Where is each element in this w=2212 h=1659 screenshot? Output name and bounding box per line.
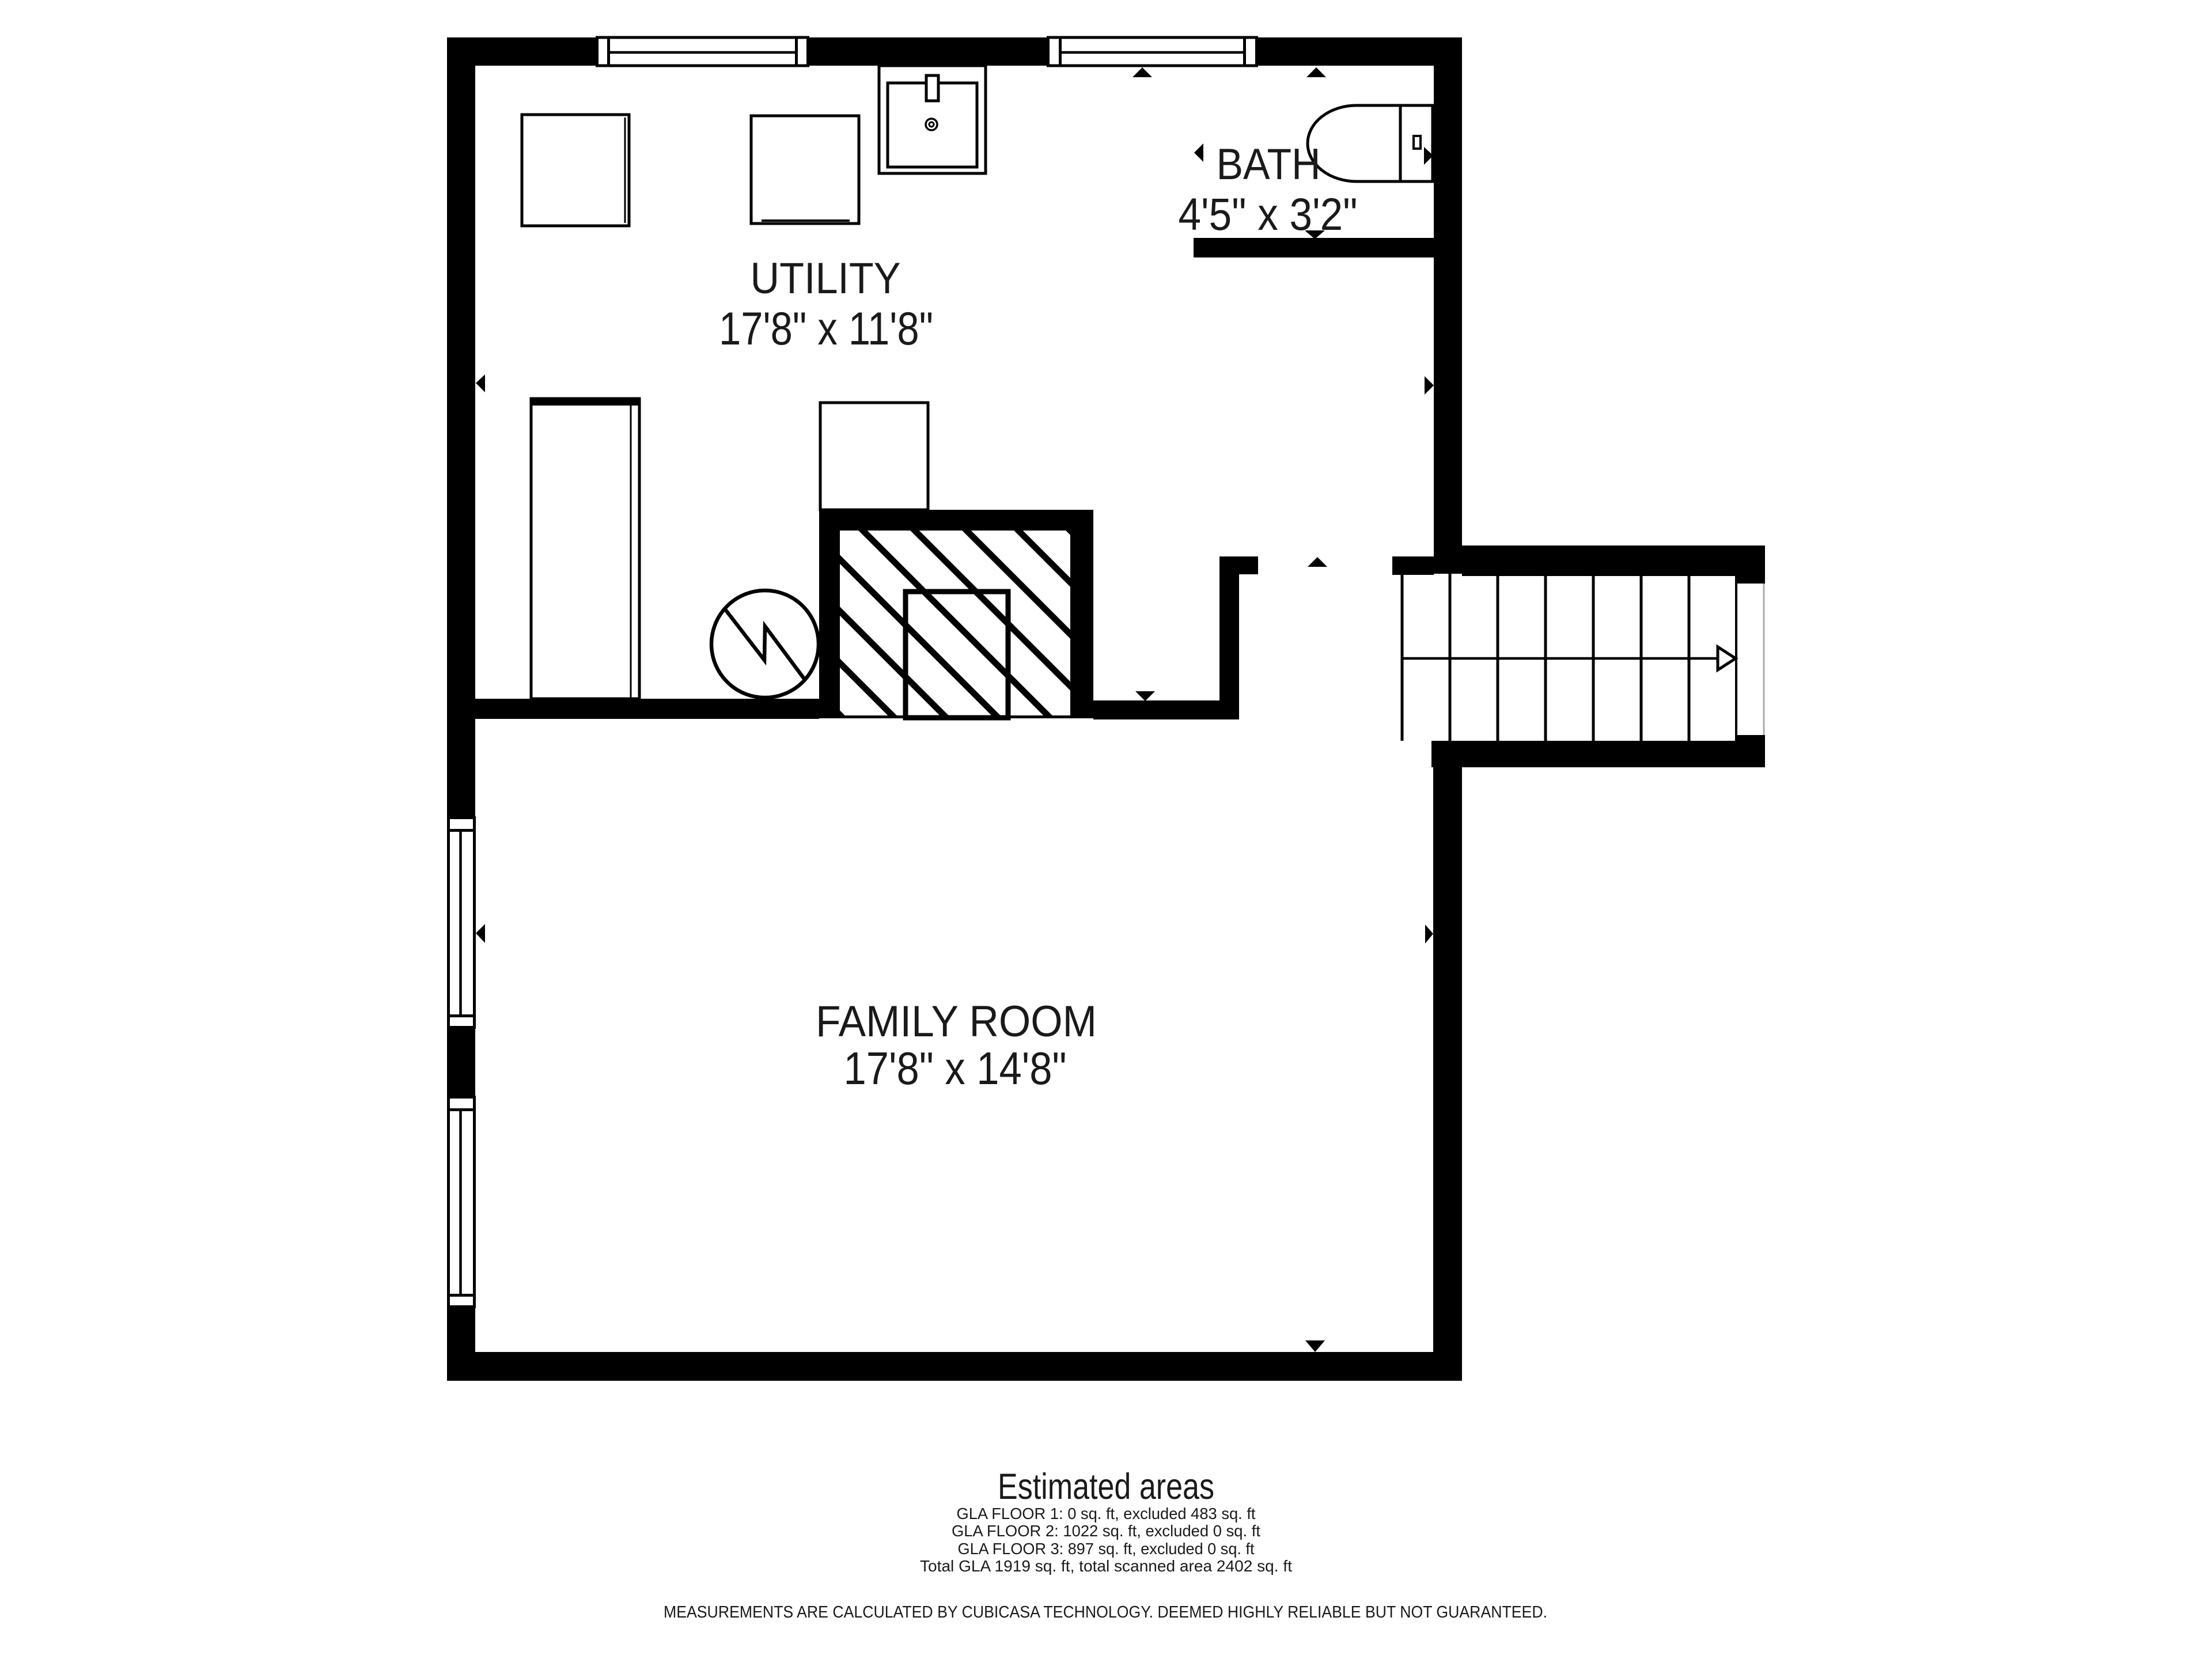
svg-text:4'5" x 3'2": 4'5" x 3'2" [1179, 188, 1358, 240]
svg-text:GLA FLOOR 3: 897 sq. ft, exclu: GLA FLOOR 3: 897 sq. ft, excluded 0 sq. … [958, 1540, 1255, 1558]
svg-text:Estimated areas: Estimated areas [998, 1467, 1214, 1507]
svg-text:17'8" x 14'8": 17'8" x 14'8" [844, 1043, 1067, 1094]
svg-text:BATH: BATH [1217, 140, 1321, 189]
svg-text:GLA FLOOR 1: 0 sq. ft, exclude: GLA FLOOR 1: 0 sq. ft, excluded 483 sq. … [957, 1505, 1256, 1522]
svg-text:Total GLA 1919 sq. ft, total s: Total GLA 1919 sq. ft, total scanned are… [920, 1557, 1292, 1575]
svg-text:MEASUREMENTS ARE CALCULATED BY: MEASUREMENTS ARE CALCULATED BY CUBICASA … [664, 1603, 1547, 1622]
svg-text:GLA FLOOR 2: 1022 sq. ft, excl: GLA FLOOR 2: 1022 sq. ft, excluded 0 sq.… [952, 1522, 1260, 1540]
svg-text:FAMILY ROOM: FAMILY ROOM [816, 997, 1097, 1046]
svg-text:UTILITY: UTILITY [751, 254, 901, 303]
svg-text:17'8" x 11'8": 17'8" x 11'8" [719, 303, 933, 355]
